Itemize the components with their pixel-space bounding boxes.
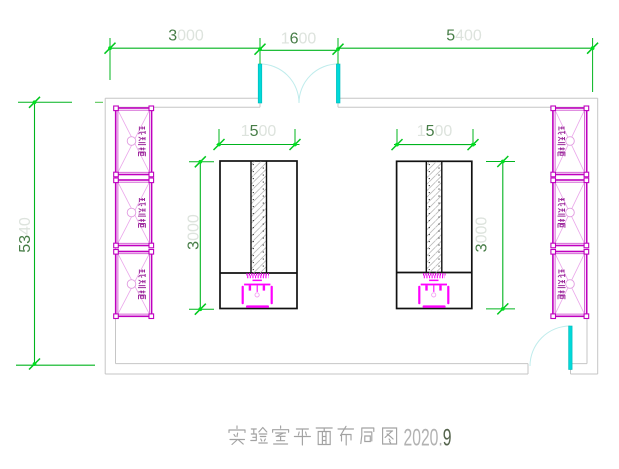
svg-text:3000: 3000 bbox=[186, 214, 203, 250]
svg-text:3000: 3000 bbox=[474, 217, 491, 253]
svg-text:3000: 3000 bbox=[168, 28, 204, 45]
svg-text:2020.9: 2020.9 bbox=[404, 425, 452, 452]
svg-text:1500: 1500 bbox=[241, 123, 277, 140]
svg-text:5400: 5400 bbox=[446, 28, 482, 45]
svg-text:5340: 5340 bbox=[17, 217, 34, 253]
svg-text:1500: 1500 bbox=[417, 123, 453, 140]
svg-text:1600: 1600 bbox=[281, 31, 317, 48]
